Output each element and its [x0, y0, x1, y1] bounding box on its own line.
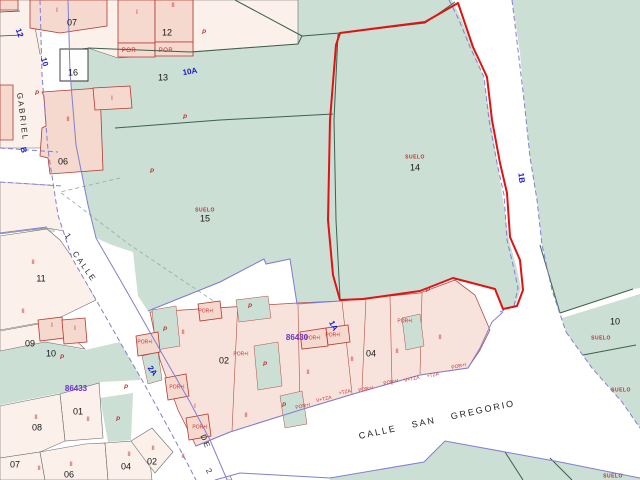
building-tall-east[interactable] [155, 0, 193, 42]
map-canvas [0, 0, 640, 480]
building-annex-por-east[interactable] [155, 42, 193, 56]
building-east-strip-a[interactable] [165, 374, 189, 400]
building-row-09-a[interactable] [38, 317, 64, 341]
building-row-09-b[interactable] [62, 318, 87, 344]
building-tall-west[interactable] [118, 0, 155, 43]
courtyard-green-2[interactable] [236, 296, 271, 322]
parcel-northeast-cream[interactable] [193, 0, 298, 52]
cadastral-map: GABRIELCALLECALLE SAN GREGORIO1DE21210B1… [0, 0, 640, 480]
building-por-box-2[interactable] [300, 328, 328, 349]
building-por-box-1[interactable] [198, 301, 222, 321]
building-west-edge[interactable] [0, 85, 13, 140]
building-small-i[interactable] [93, 86, 132, 110]
building-por-box-3[interactable] [326, 325, 350, 345]
courtyard-green-5[interactable] [402, 314, 424, 350]
building-parcel-16[interactable] [60, 49, 88, 81]
building-corner-nw[interactable] [0, 0, 18, 10]
courtyard-green-3[interactable] [254, 342, 282, 390]
